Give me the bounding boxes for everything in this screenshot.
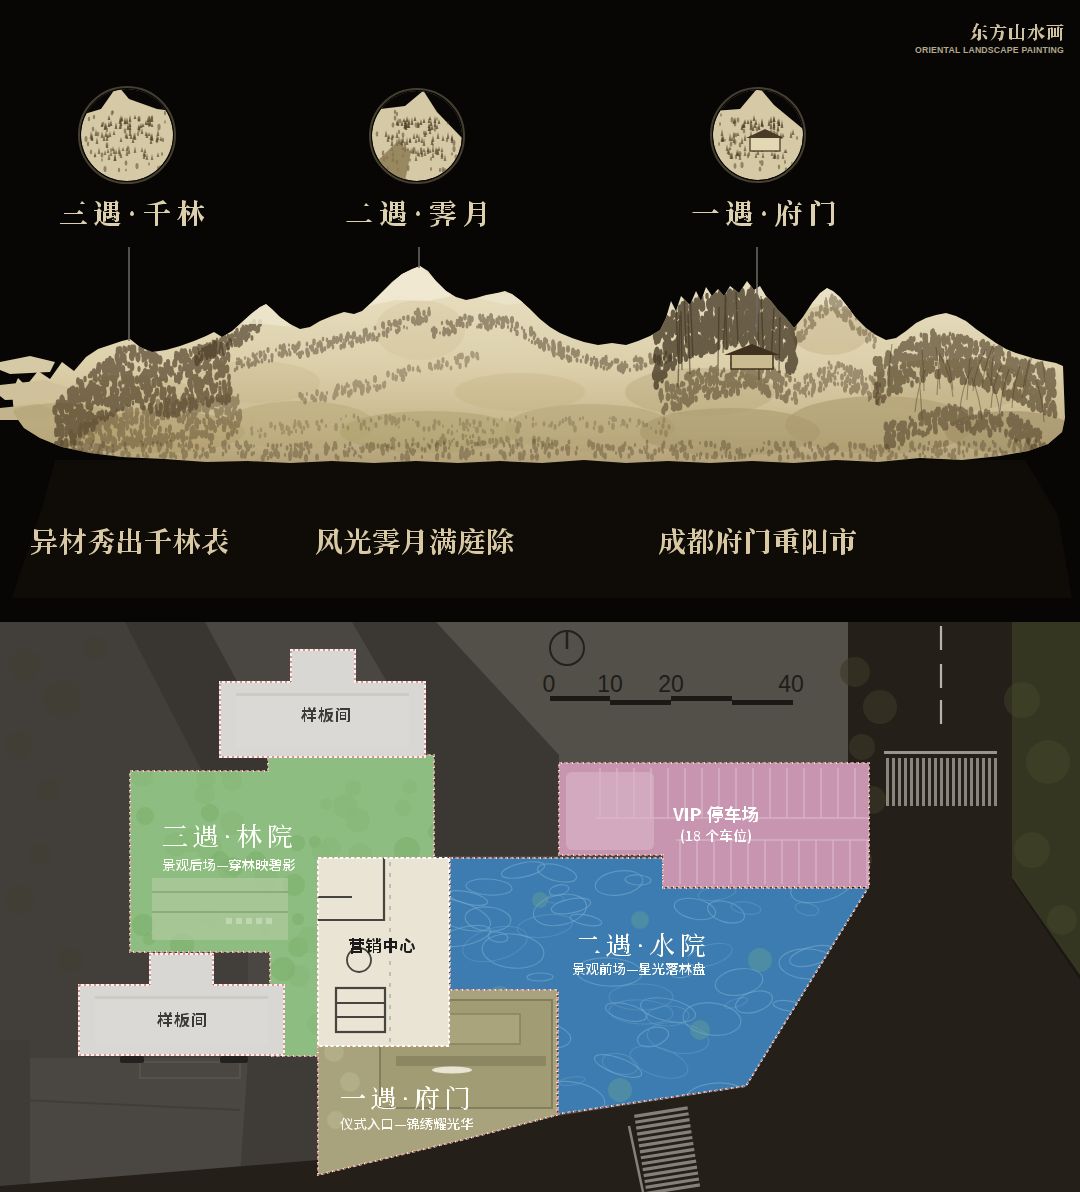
svg-text:20: 20 [658,671,684,697]
svg-text:10: 10 [597,671,623,697]
svg-text:40: 40 [778,671,804,697]
svg-text:0: 0 [543,671,556,697]
svg-text:ORIENTAL LANDSCAPE PAINTING: ORIENTAL LANDSCAPE PAINTING [915,45,1064,55]
